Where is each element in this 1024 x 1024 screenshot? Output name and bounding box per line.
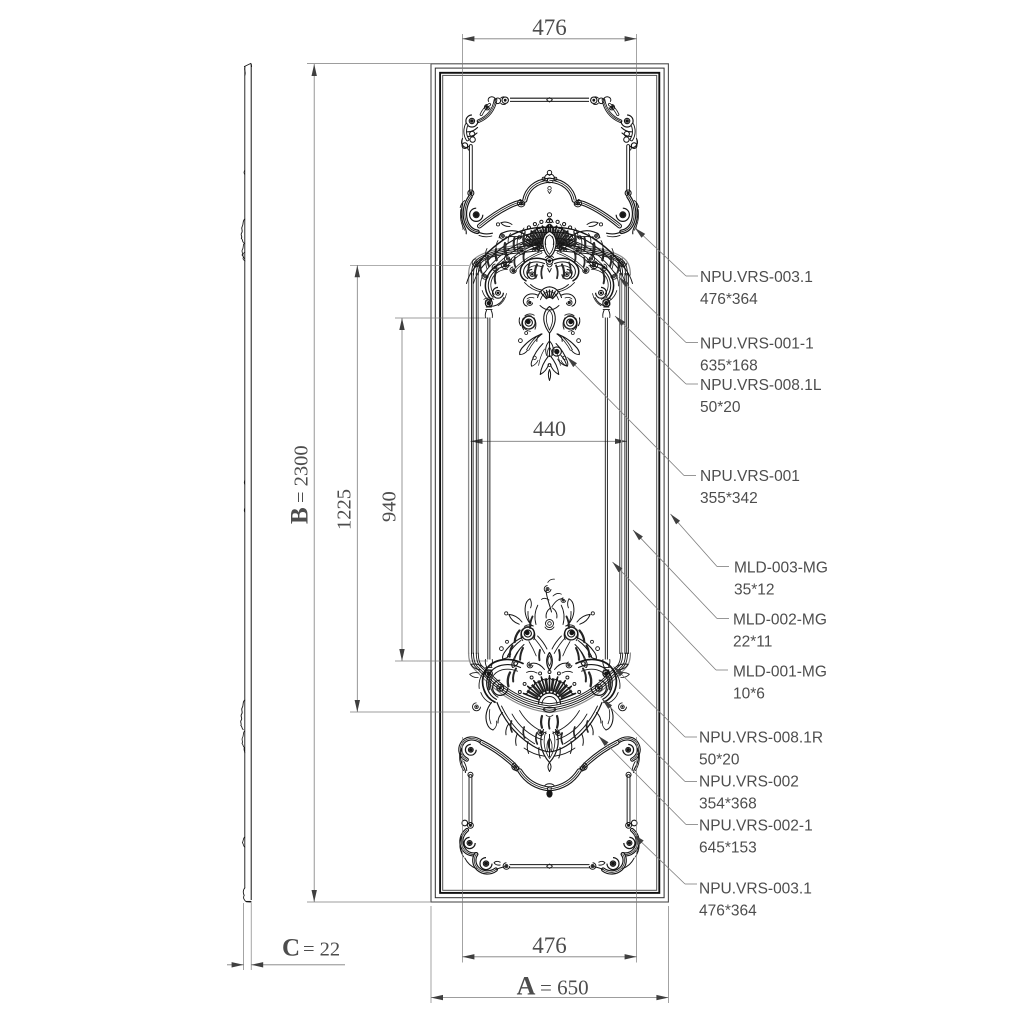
svg-text:476: 476 — [532, 933, 567, 958]
svg-text:440: 440 — [533, 416, 566, 441]
svg-text:50*20: 50*20 — [699, 751, 740, 768]
svg-text:NPU.VRS-002-1: NPU.VRS-002-1 — [699, 818, 813, 835]
svg-text:MLD-003-MG: MLD-003-MG — [734, 560, 828, 577]
svg-text:476*364: 476*364 — [699, 902, 757, 919]
svg-text:22*11: 22*11 — [733, 633, 772, 650]
svg-text:940: 940 — [379, 491, 401, 522]
svg-text:NPU.VRS-001-1: NPU.VRS-001-1 — [700, 336, 814, 353]
svg-text:10*6: 10*6 — [733, 685, 765, 702]
svg-text:B: B — [287, 507, 314, 524]
svg-text:MLD-002-MG: MLD-002-MG — [733, 612, 827, 629]
svg-text:NPU.VRS-001: NPU.VRS-001 — [700, 468, 800, 485]
svg-text:NPU.VRS-002: NPU.VRS-002 — [699, 774, 799, 791]
svg-text:50*20: 50*20 — [700, 399, 741, 416]
svg-text:NPU.VRS-008.1R: NPU.VRS-008.1R — [699, 730, 823, 747]
svg-text:355*342: 355*342 — [700, 490, 758, 507]
svg-text:NPU.VRS-008.1L: NPU.VRS-008.1L — [700, 377, 822, 394]
svg-text:= 2300: = 2300 — [291, 445, 313, 503]
svg-text:NPU.VRS-003.1: NPU.VRS-003.1 — [699, 881, 812, 898]
svg-text:= 650: = 650 — [540, 976, 589, 1000]
svg-text:476: 476 — [532, 15, 567, 40]
svg-text:1225: 1225 — [334, 489, 356, 530]
svg-text:= 22: = 22 — [303, 939, 340, 961]
svg-text:635*168: 635*168 — [700, 357, 758, 374]
svg-text:A: A — [517, 972, 536, 1001]
svg-text:476*364: 476*364 — [700, 291, 758, 308]
svg-text:NPU.VRS-003.1: NPU.VRS-003.1 — [700, 269, 813, 286]
svg-text:C: C — [282, 935, 300, 962]
svg-text:35*12: 35*12 — [734, 581, 775, 598]
svg-text:MLD-001-MG: MLD-001-MG — [733, 664, 827, 681]
svg-text:354*368: 354*368 — [699, 795, 757, 812]
svg-text:645*153: 645*153 — [699, 839, 757, 856]
